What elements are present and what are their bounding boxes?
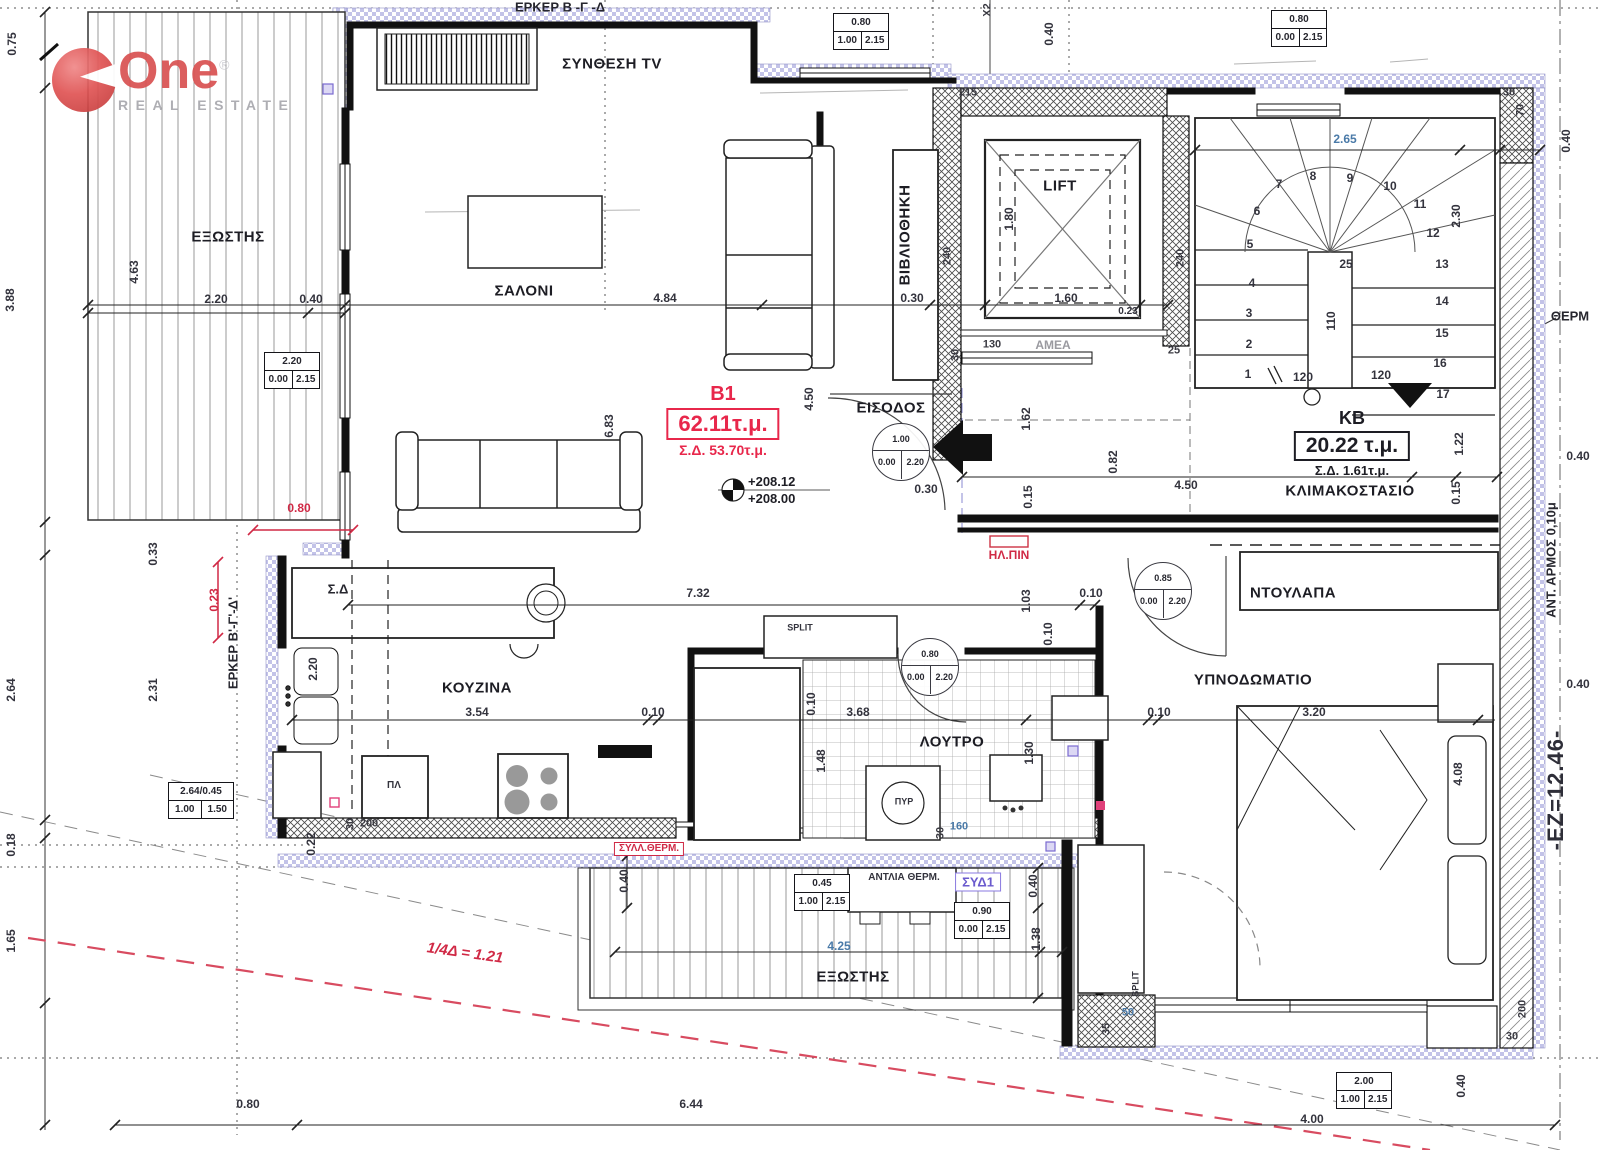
dimension-label: 3.88	[4, 288, 16, 311]
window-schedule-tag: 0.451.002.15	[794, 874, 850, 911]
dimension-label: 16	[1433, 357, 1446, 369]
room-label-bedroom: ΥΠΝΟΔΩΜΑΤΙΟ	[1194, 673, 1312, 688]
room-label-balcony-bottom: ΕΞΩΣΤΗΣ	[816, 970, 889, 985]
window-height: 1.50	[202, 801, 234, 818]
syll-therm-tag: ΣΥΛΛ.ΘΕΡΜ.	[614, 842, 684, 856]
coffee-table	[468, 196, 602, 268]
dimension-label: 1.22	[1453, 432, 1465, 455]
fridge	[273, 752, 321, 818]
dimension-label: 4	[1249, 277, 1256, 289]
window-width: 2.20	[265, 353, 319, 371]
split-unit-bath	[764, 616, 897, 658]
kitchen-hood	[598, 745, 652, 758]
window-height: 2.15	[862, 32, 889, 49]
dimension-label: 2	[1246, 338, 1253, 350]
window-height: 2.15	[823, 893, 850, 910]
dimension-label: 4.00	[1300, 1113, 1323, 1125]
dimension-label: 2.31	[147, 678, 159, 701]
window-schedule-tag: 2.001.002.15	[1336, 1072, 1392, 1109]
dimension-label: 9	[1347, 172, 1354, 184]
logo-arrow-notch	[80, 62, 120, 88]
window-sill: 0.00	[265, 371, 293, 388]
door-schedule-tag: 1.000.002.20	[872, 423, 930, 481]
dimension-label: 0.82	[1107, 450, 1119, 473]
room-label-stairwell: ΚΛΙΜΑΚΟΣΤΑΣΙΟ	[1285, 484, 1414, 499]
dimension-label: 0.10	[805, 692, 817, 715]
window-sill: 1.00	[795, 893, 823, 910]
room-label-balcony-left: ΕΞΩΣΤΗΣ	[191, 230, 264, 245]
sofa-horizontal	[396, 432, 642, 532]
dimension-label: 1.03	[1020, 589, 1032, 612]
window-sill: 1.00	[169, 801, 202, 818]
dimension-label: 13	[1435, 258, 1448, 270]
dimension-label: 3.68	[846, 706, 869, 718]
dimension-label: 0.18	[5, 833, 17, 856]
dimension-label: 0.40	[618, 869, 630, 892]
room-label-library: ΒΙΒΛΙΟΘΗΚΗ	[898, 185, 913, 286]
dimension-label: 2.30	[1450, 204, 1462, 227]
dimension-label: 0.15	[1022, 485, 1034, 508]
dimension-label: 0.30	[900, 292, 923, 304]
dimension-label: 215	[959, 88, 977, 99]
window-width: 0.80	[834, 14, 888, 32]
window-height: 2.15	[1300, 29, 1327, 46]
apartment-area-stamp: B1 62.11τ.μ. Σ.Δ. 53.70τ.μ.	[666, 383, 779, 458]
apartment-id: B1	[666, 383, 779, 406]
dimension-label: 35	[1102, 1023, 1113, 1035]
floorplan-linework	[0, 0, 1600, 1150]
dimension-label: 0.10	[641, 706, 664, 718]
dimension-label: 4.63	[128, 260, 140, 283]
window-width: 2.00	[1337, 1073, 1391, 1091]
dimension-label: 130	[983, 340, 1001, 351]
floorplan-canvas: One® REAL ESTATE B1 62.11τ.μ. Σ.Δ. 53.70…	[0, 0, 1600, 1150]
room-label-entrance: ΕΙΣΟΔΟΣ	[857, 401, 926, 416]
dimension-label: 0.40	[1566, 678, 1589, 690]
sofa-vertical	[724, 140, 834, 370]
seismic-joint-label: ΑΝΤ. ΑΡΜΟΣ 0,10μ	[1545, 502, 1558, 618]
window-width: 0.90	[955, 903, 1009, 921]
door-schedule-tag: 0.800.002.20	[901, 638, 959, 696]
dimension-label: SPLIT	[1132, 971, 1141, 997]
window-sill: 1.00	[834, 32, 862, 49]
dimension-label: 7	[1276, 178, 1283, 190]
window-schedule-tag: 0.801.002.15	[833, 13, 889, 50]
window-sill: 0.00	[955, 921, 983, 938]
room-label-kitchen: ΚΟΥΖΙΝΑ	[442, 681, 512, 696]
dimension-label: 6.44	[679, 1098, 702, 1110]
window-height: 2.15	[1365, 1091, 1392, 1108]
dimension-label: 0.22	[305, 832, 317, 855]
dimension-label: 14	[1435, 295, 1448, 307]
kb-id: KB	[1294, 408, 1410, 429]
dimension-label: 0.30	[914, 483, 937, 495]
window-schedule-tag: 0.800.002.15	[1271, 10, 1327, 47]
kitchen-counter	[292, 568, 554, 638]
dimension-label: 120	[1293, 371, 1313, 383]
window-sill: 0.00	[1272, 29, 1300, 46]
dimension-label: 1.38	[1030, 927, 1042, 950]
dimension-label: 1.30	[1023, 741, 1035, 764]
bed	[1237, 706, 1493, 1000]
room-label-tv: ΣΥΝΘΕΣΗ TV	[562, 57, 662, 72]
dimension-label: ΠΛ	[387, 781, 401, 791]
dimension-label: 4.50	[803, 387, 815, 410]
dimension-label: 25	[1168, 346, 1180, 357]
dimension-label: 120	[1371, 369, 1391, 381]
dimension-label: 1.80	[1003, 207, 1015, 230]
dimension-label: Σ.Δ	[328, 583, 349, 596]
apartment-area: 62.11τ.μ.	[666, 408, 779, 440]
dimension-label: 30	[936, 827, 947, 839]
dimension-label: 4.84	[653, 292, 676, 304]
stair-direction-arrow	[1388, 383, 1432, 408]
dimension-label: 15	[1435, 327, 1448, 339]
dimension-label: 4.25	[827, 940, 850, 952]
dimension-label: 30	[951, 349, 962, 361]
dimension-label: Χ2	[983, 3, 994, 16]
dimension-label: 0.40	[1566, 450, 1589, 462]
window-sill: 1.00	[1337, 1091, 1365, 1108]
kb-area-stamp: KB 20.22 τ.μ. Σ.Δ. 1.61τ.μ.	[1294, 408, 1410, 478]
dimension-label: 2.20	[307, 657, 319, 680]
window-width: 0.80	[1272, 11, 1326, 29]
dimension-label: 0.23	[1118, 307, 1137, 317]
dimension-label: 4.08	[1452, 762, 1464, 785]
kb-area: 20.22 τ.μ.	[1294, 431, 1410, 461]
dimension-label: 0.40	[1560, 129, 1572, 152]
dimension-label: 50	[1122, 1008, 1134, 1019]
dimension-label: 240	[943, 247, 954, 265]
dimension-label: 0.15	[1450, 481, 1462, 504]
dimension-label: 0.75	[6, 32, 18, 55]
dimension-label: 2.65	[1333, 133, 1356, 145]
dimension-label: 1	[1245, 368, 1252, 380]
dimension-label: 0.40	[299, 293, 322, 305]
dimension-label: 0.80	[236, 1098, 259, 1110]
dimension-label: 17	[1436, 388, 1449, 400]
dimension-label: 30	[1506, 1032, 1518, 1043]
logo-brand: One®	[118, 42, 229, 100]
dimension-label: 3.54	[465, 706, 488, 718]
room-label-closet: ΝΤΟΥΛΑΠΑ	[1250, 586, 1336, 601]
dimension-label: 5	[1247, 238, 1254, 250]
dimension-label: 0.80	[287, 502, 310, 514]
dimension-label: 30	[346, 818, 357, 830]
window-schedule-tag: 2.64/0.451.001.50	[168, 782, 234, 819]
dimension-label: 0.10	[1147, 706, 1170, 718]
dimension-label: 2.64	[5, 678, 17, 701]
electrical-panel	[990, 536, 1028, 547]
room-label-bath: ΛΟΥΤΡΟ	[920, 735, 985, 750]
dimension-label: 110	[1325, 311, 1337, 330]
level-lower: +208.00	[748, 491, 795, 507]
dimension-label: 1.62	[1020, 407, 1032, 430]
apartment-sd: Σ.Δ. 53.70τ.μ.	[666, 442, 779, 458]
dimension-label: 0.40	[1043, 22, 1055, 45]
dimension-label: 160	[950, 822, 968, 833]
dimension-label: 6	[1254, 205, 1261, 217]
dimension-label: SPLIT	[787, 624, 813, 633]
dimension-label: 0.40	[1455, 1074, 1467, 1097]
dimension-label: ΑΝΤΛΙΑ ΘΕΡΜ.	[868, 873, 939, 883]
dimension-label: 3	[1246, 307, 1253, 319]
window-schedule-tag: 2.200.002.15	[264, 352, 320, 389]
door-schedule-tag: 0.850.002.20	[1134, 562, 1192, 620]
dimension-label: 25	[1339, 258, 1352, 270]
dimension-label: 200	[1518, 1000, 1529, 1018]
nightstand	[1438, 664, 1493, 722]
one-real-estate-logo: One® REAL ESTATE	[52, 48, 295, 113]
dimension-label: 1.65	[5, 929, 17, 952]
dimension-label: 10	[1383, 180, 1396, 192]
level-marker	[722, 479, 744, 501]
window-schedule-tag: 0.900.002.15	[954, 902, 1010, 939]
dimension-label: 0.10	[1079, 587, 1102, 599]
erker-label-left: ΕΡΚΕΡ Β'-Γ'-Δ'	[227, 597, 240, 689]
logo-mark	[52, 48, 116, 112]
window-width: 0.45	[795, 875, 849, 893]
kb-sd: Σ.Δ. 1.61τ.μ.	[1294, 463, 1410, 478]
dimension-label: ΠΥΡ	[895, 798, 914, 807]
dimension-label: 240	[1176, 249, 1187, 267]
toilet	[1052, 696, 1108, 740]
dimension-label: 6.83	[603, 414, 615, 437]
room-label-lift: LIFT	[1043, 179, 1077, 194]
dimension-label: 12	[1426, 227, 1439, 239]
electrical-panel-label: ΗΛ.ΠΙΝ	[989, 549, 1030, 561]
dimension-label: 2.20	[204, 293, 227, 305]
dimension-label: 3.20	[1302, 706, 1325, 718]
window-width: 2.64/0.45	[169, 783, 233, 801]
dimension-label: 1.48	[815, 749, 827, 772]
level-upper: +208.12	[748, 474, 795, 490]
dimension-label: 0.23	[208, 588, 220, 611]
shower	[694, 668, 800, 840]
dimension-label: 1.60	[1054, 292, 1077, 304]
dimension-label: 7.32	[686, 587, 709, 599]
syd1-tag: ΣΥΔ1	[955, 873, 1001, 892]
dimension-label: 200	[360, 819, 378, 830]
dimension-label: ΑΜΕΑ	[1035, 339, 1070, 351]
window-height: 2.15	[293, 371, 320, 388]
therm-label: ΘΕΡΜ	[1551, 310, 1589, 323]
dimension-label: 4.50	[1174, 479, 1197, 491]
ez-level-label: -ΕΖ=12.46-	[1545, 730, 1567, 851]
room-label-living: ΣΑΛΟΝΙ	[494, 284, 553, 299]
dimension-label: 11	[1414, 198, 1427, 210]
dimension-label: 8	[1310, 170, 1317, 182]
dimension-label: 0.40	[1027, 874, 1039, 897]
dimension-label: 30	[1503, 88, 1515, 99]
dimension-label: 0.10	[1042, 622, 1054, 645]
dimension-label: 70	[1516, 104, 1527, 116]
window-height: 2.15	[983, 921, 1010, 938]
erker-label-top: ΕΡΚΕΡ Β -Γ -Δ	[515, 1, 605, 14]
logo-subtitle: REAL ESTATE	[118, 97, 295, 113]
dimension-label: 0.33	[147, 542, 159, 565]
